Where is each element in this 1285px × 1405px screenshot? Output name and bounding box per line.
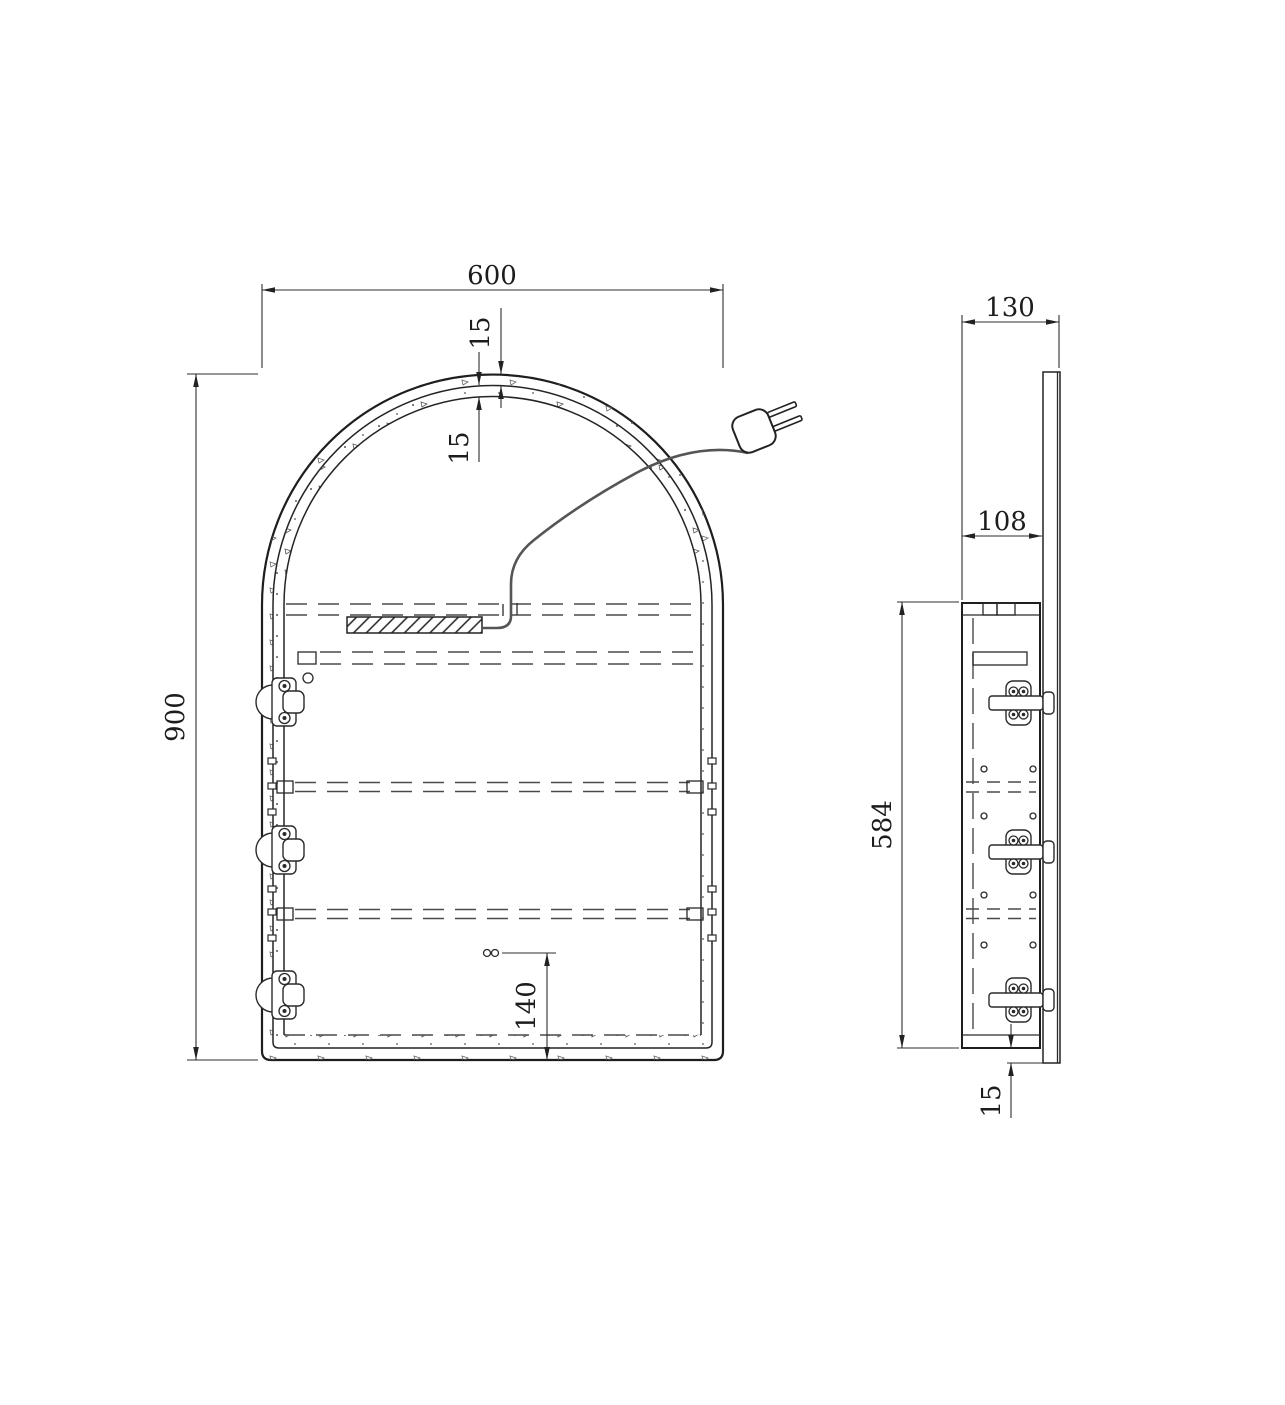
- dim-side-body-depth-label: 108: [977, 507, 1027, 537]
- technical-drawing: 600 15 15 900 140: [0, 0, 1285, 1400]
- front-outer-outline: [262, 375, 723, 1060]
- led-driver: [347, 617, 482, 633]
- dimension-side-body-height: 584: [868, 602, 959, 1048]
- dim-side-door-overhang-label: 15: [977, 1084, 1007, 1117]
- dimension-front-width: 600: [262, 261, 723, 368]
- side-view: 130 108 584 15: [868, 293, 1060, 1118]
- dim-front-width-label: 600: [467, 261, 517, 291]
- dim-side-body-height-label: 584: [868, 800, 898, 850]
- dim-front-frame-lip-label: 15: [466, 316, 496, 349]
- dim-side-total-depth-label: 130: [985, 293, 1035, 323]
- front-view: 600 15 15 900 140: [161, 261, 807, 1060]
- dim-front-socket-height-label: 140: [512, 981, 542, 1031]
- side-door-panel: [1043, 372, 1060, 1063]
- dimension-side-body-depth: 108: [962, 507, 1042, 537]
- dim-front-height-label: 900: [161, 692, 191, 742]
- dimension-side-total-depth: 130: [962, 293, 1059, 600]
- power-plug-icon: [729, 395, 806, 456]
- drawing-canvas: 600 15 15 900 140: [0, 0, 1285, 1400]
- dimension-front-height: 900: [161, 374, 258, 1060]
- dim-front-frame-depth-label: 15: [445, 431, 475, 464]
